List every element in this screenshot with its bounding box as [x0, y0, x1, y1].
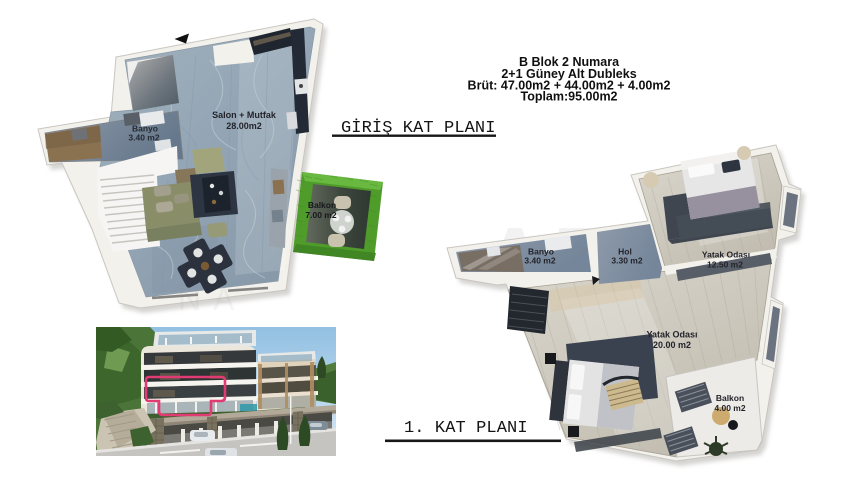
svg-text:28.00m2: 28.00m2: [226, 121, 262, 131]
svg-text:12.50 m2: 12.50 m2: [707, 260, 743, 270]
svg-text:1. KAT PLANI: 1. KAT PLANI: [404, 419, 528, 438]
svg-text:4.00 m2: 4.00 m2: [714, 403, 745, 413]
svg-text:Yatak Odası: Yatak Odası: [702, 250, 750, 260]
svg-text:3.40 m2: 3.40 m2: [128, 133, 159, 143]
svg-text:3.40 m2: 3.40 m2: [524, 256, 555, 266]
svg-text:7.00 m2: 7.00 m2: [305, 210, 336, 220]
svg-text:Salon + Mutfak: Salon + Mutfak: [212, 110, 277, 120]
svg-text:Yatak Odası: Yatak Odası: [646, 330, 697, 340]
svg-text:Toplam:95.00m2: Toplam:95.00m2: [520, 90, 617, 104]
svg-text:3.30 m2: 3.30 m2: [611, 256, 642, 266]
svg-text:NA: NA: [178, 281, 246, 317]
svg-text:Balkon: Balkon: [308, 200, 336, 210]
svg-text:20.00 m2: 20.00 m2: [653, 340, 691, 350]
svg-text:Balkon: Balkon: [716, 393, 744, 403]
